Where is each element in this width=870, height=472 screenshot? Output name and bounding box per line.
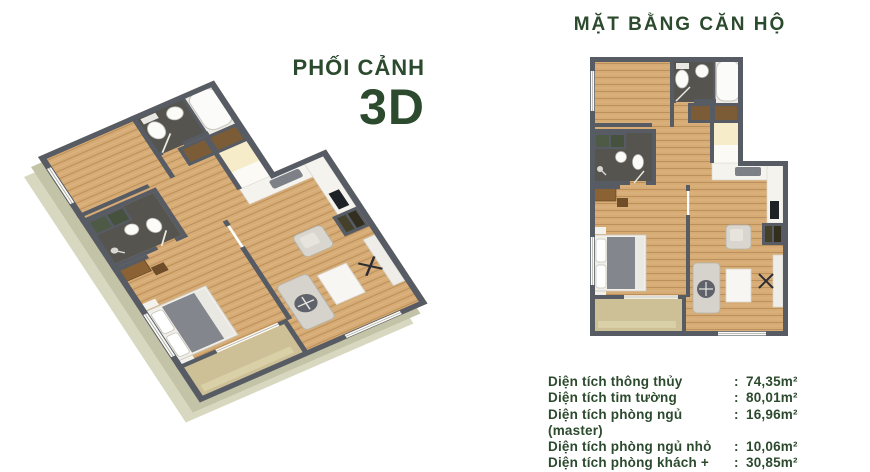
measurement-label: Diện tích phòng ngủ (master)	[548, 407, 732, 440]
measurement-separator: :	[734, 439, 744, 455]
measurement-label: Diện tích phòng ngủ nhỏ	[548, 439, 732, 455]
measurement-separator: :	[734, 374, 744, 390]
measurement-label: Diện tích tim tường	[548, 390, 732, 406]
measurement-value: 10,06m²	[746, 439, 860, 455]
2d-plan-title: MẶT BẰNG CĂN HỘ	[555, 14, 805, 36]
measurement-separator: :	[734, 455, 744, 472]
measurement-row: Diện tích tim tường : 80,01m²	[548, 390, 860, 406]
measurement-row: Diện tích thông thủy : 74,35m²	[548, 374, 860, 390]
measurement-value: 80,01m²	[746, 390, 860, 406]
floor-plan-2d	[590, 57, 788, 338]
measurement-value: 16,96m²	[746, 407, 860, 440]
3d-title-line1: PHỐI CẢNH	[283, 57, 425, 79]
measurement-label: Diện tích thông thủy	[548, 374, 732, 390]
measurement-separator: :	[734, 407, 744, 440]
brochure-canvas: PHỐI CẢNH 3D MẶT BẰNG CĂN HỘ Diện tích t…	[0, 0, 870, 472]
measurement-separator: :	[734, 390, 744, 406]
measurement-value: 74,35m²	[746, 374, 860, 390]
3d-title-block: PHỐI CẢNH 3D	[283, 57, 425, 132]
measurement-label: Diện tích phòng khách + bếp	[548, 455, 732, 472]
measurement-row: Diện tích phòng ngủ nhỏ : 10,06m²	[548, 439, 860, 455]
3d-title-line2: 3D	[283, 82, 425, 132]
measurement-row: Diện tích phòng ngủ (master) : 16,96m²	[548, 407, 860, 440]
measurement-value: 30,85m²	[746, 455, 860, 472]
floor-plan-3d	[0, 22, 500, 467]
measurements-list: Diện tích thông thủy : 74,35m² Diện tích…	[548, 374, 860, 472]
measurement-row: Diện tích phòng khách + bếp : 30,85m²	[548, 455, 860, 472]
